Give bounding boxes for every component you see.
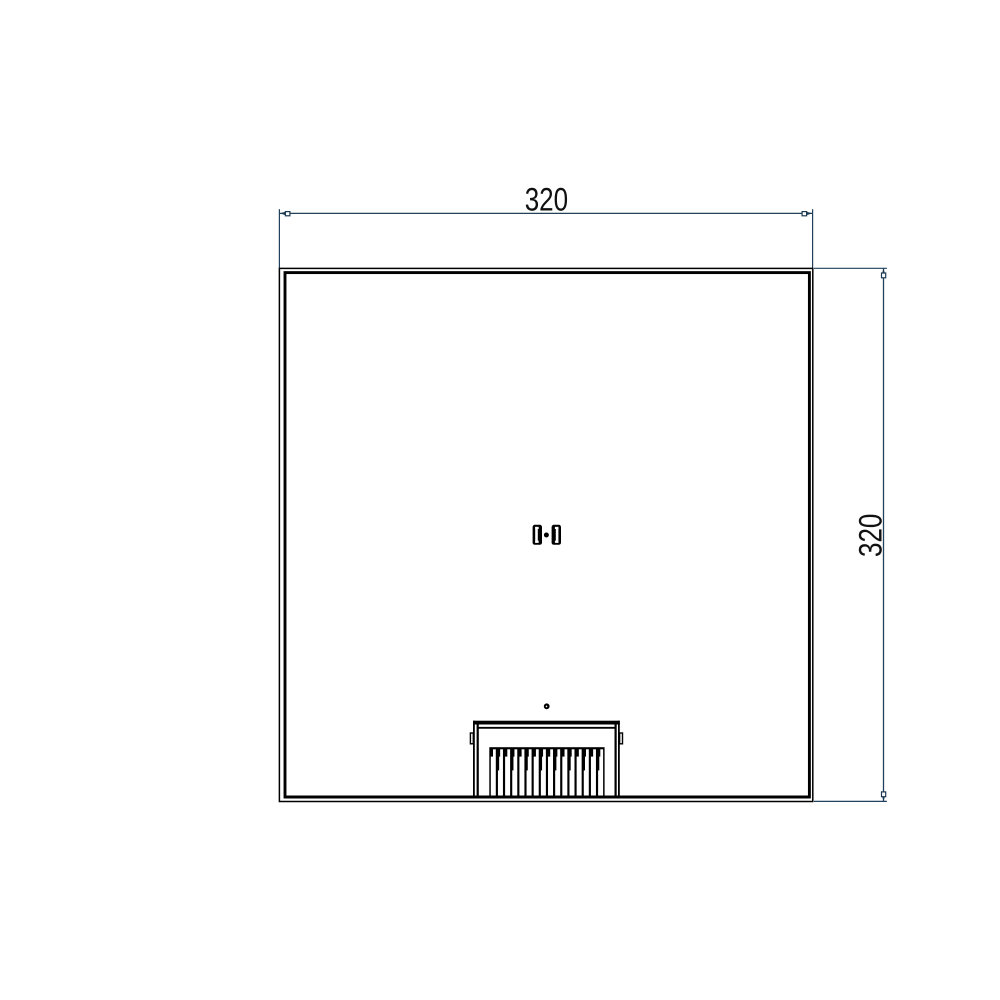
svg-text:320: 320 (852, 514, 888, 557)
svg-text:320: 320 (525, 182, 568, 218)
